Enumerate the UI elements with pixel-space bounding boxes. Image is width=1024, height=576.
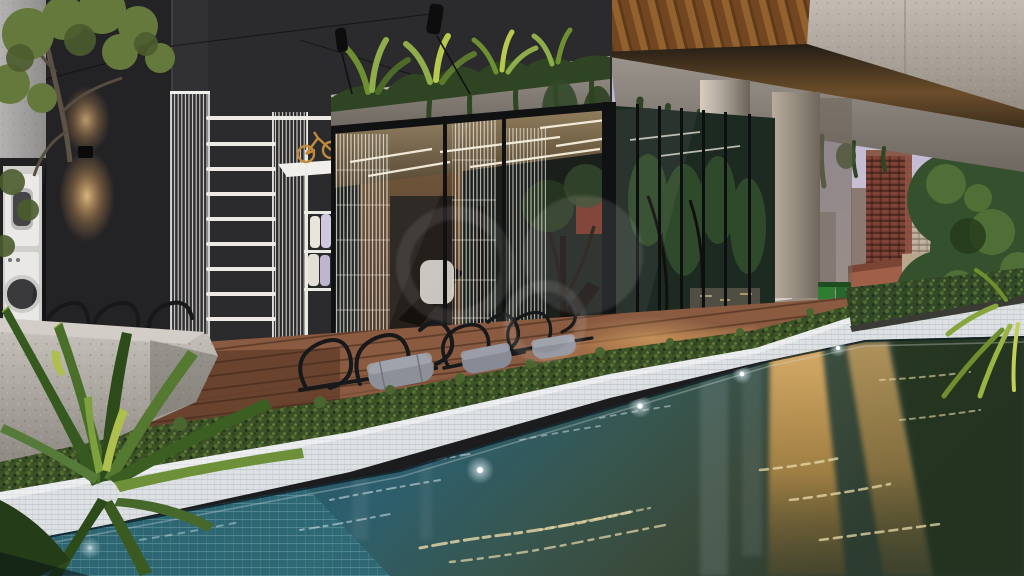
scene-svg (0, 0, 1024, 576)
column-rear (772, 92, 820, 298)
sconce-downlight (59, 150, 115, 242)
render-canvas (0, 0, 1024, 576)
white-stool (420, 260, 454, 304)
gym-pavilion-right-face (616, 100, 776, 340)
wall-sconce-fixture (78, 146, 93, 158)
